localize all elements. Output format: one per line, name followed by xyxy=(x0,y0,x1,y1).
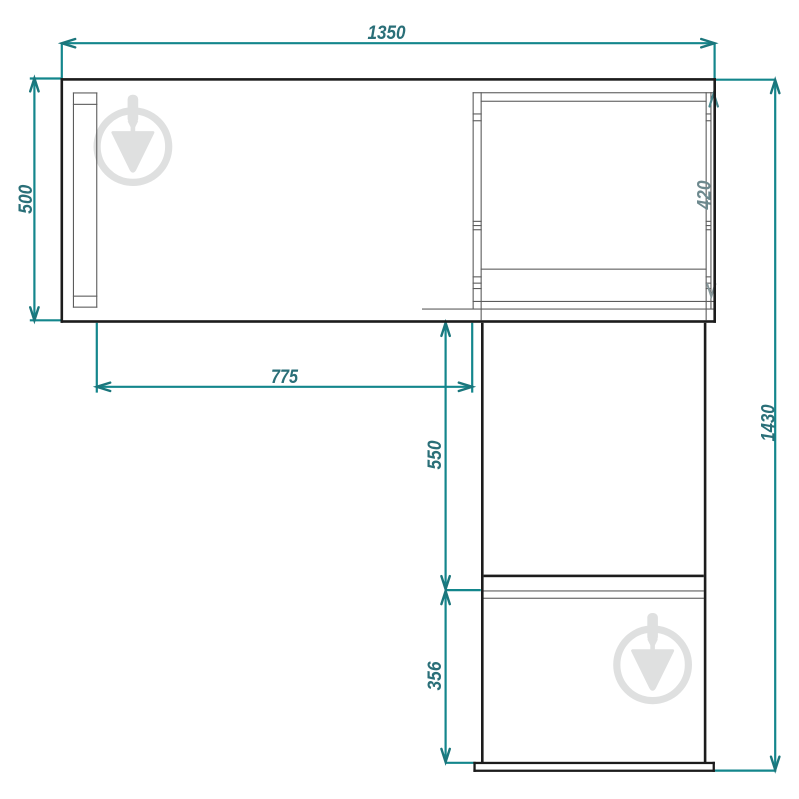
svg-text:1430: 1430 xyxy=(758,404,780,441)
svg-text:500: 500 xyxy=(15,185,37,214)
svg-text:420: 420 xyxy=(694,180,716,210)
svg-text:775: 775 xyxy=(271,366,299,388)
svg-text:1350: 1350 xyxy=(368,22,406,44)
svg-text:550: 550 xyxy=(424,440,446,469)
svg-text:356: 356 xyxy=(424,661,446,690)
